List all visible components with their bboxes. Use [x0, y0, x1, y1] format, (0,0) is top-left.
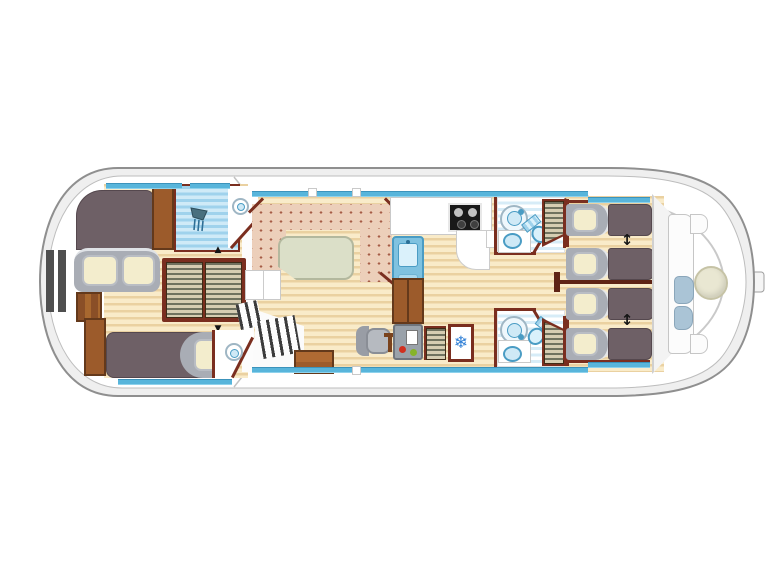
aft-double-bed-mattress [76, 190, 154, 250]
aft-cabinet [152, 184, 174, 250]
shower-head-icon [186, 204, 212, 236]
wall [212, 330, 215, 378]
toilet-icon [225, 343, 243, 361]
berth-pillow [572, 332, 598, 356]
aft-wardrobe-column [84, 318, 106, 376]
deck-door-mark [352, 188, 361, 197]
wall [494, 197, 497, 255]
bow-bench-arm [690, 334, 708, 354]
bow-bench-cushion [674, 306, 693, 330]
deck-door-mark [308, 188, 317, 197]
washbasin-icon [503, 346, 522, 362]
washbasin-icon [503, 233, 522, 249]
berth-mattress [608, 328, 652, 360]
berth-pillow [572, 208, 598, 232]
burner-icon [457, 220, 466, 229]
salon-counter [245, 270, 281, 300]
bench-plank [296, 352, 332, 362]
indicator-green [410, 349, 417, 356]
snowflake-icon: ❄ [451, 327, 471, 359]
shower-fitting [518, 209, 524, 215]
instrument-display [406, 330, 418, 345]
window-strip [190, 183, 230, 189]
refrigerator: ❄ [448, 324, 474, 362]
sink-basin [398, 243, 418, 267]
toilet-bowl [237, 203, 245, 211]
burner-icon [454, 208, 463, 217]
aft-wardrobe-door [166, 262, 203, 318]
helm-console [393, 324, 423, 360]
cabin-divider-wall [558, 280, 662, 284]
berth-slide-arrow-icon: ↕ [619, 232, 635, 248]
window-strip [252, 367, 588, 373]
galley-cabinet [392, 278, 424, 324]
counter-divider [263, 271, 264, 299]
wall [494, 308, 536, 311]
dinette-seat-right [360, 228, 392, 282]
berth-pillow [572, 292, 598, 316]
bulkhead-edge [652, 194, 654, 374]
galley-stove [448, 203, 482, 232]
wall [494, 309, 497, 368]
window-strip [588, 362, 650, 368]
bed-pillow [122, 255, 155, 286]
window-strip [106, 183, 182, 189]
boat-floor-plan: ▲ ▼ ❄ [0, 0, 768, 576]
cabinet-divider [407, 280, 409, 322]
louvered-wardrobe [544, 322, 564, 364]
arrow-up-icon: ▲ [210, 245, 226, 256]
toilet-icon [232, 198, 249, 215]
burner-icon [468, 208, 477, 217]
indicator-red [399, 346, 406, 353]
faucet-icon [406, 240, 410, 244]
berth-slide-arrow-icon: ↕ [619, 312, 635, 328]
louvered-wardrobe [544, 201, 564, 243]
window-strip [588, 197, 650, 203]
bow-table [694, 266, 728, 300]
bow-bench-arm [690, 214, 708, 234]
bow-bench-cushion [674, 276, 694, 304]
shelf-cabinet-frame [424, 326, 446, 360]
berth-pillow [572, 252, 598, 276]
toilet-bowl [230, 349, 239, 358]
berth-mattress [608, 248, 654, 280]
bed-pillow [82, 255, 118, 286]
galley-counter-l [456, 230, 490, 270]
window-strip [118, 379, 232, 385]
shelf-cabinet [426, 328, 446, 360]
deck-door-mark [352, 366, 361, 375]
window-strip [252, 191, 588, 197]
burner-icon [470, 220, 479, 229]
salon-table [278, 236, 354, 280]
